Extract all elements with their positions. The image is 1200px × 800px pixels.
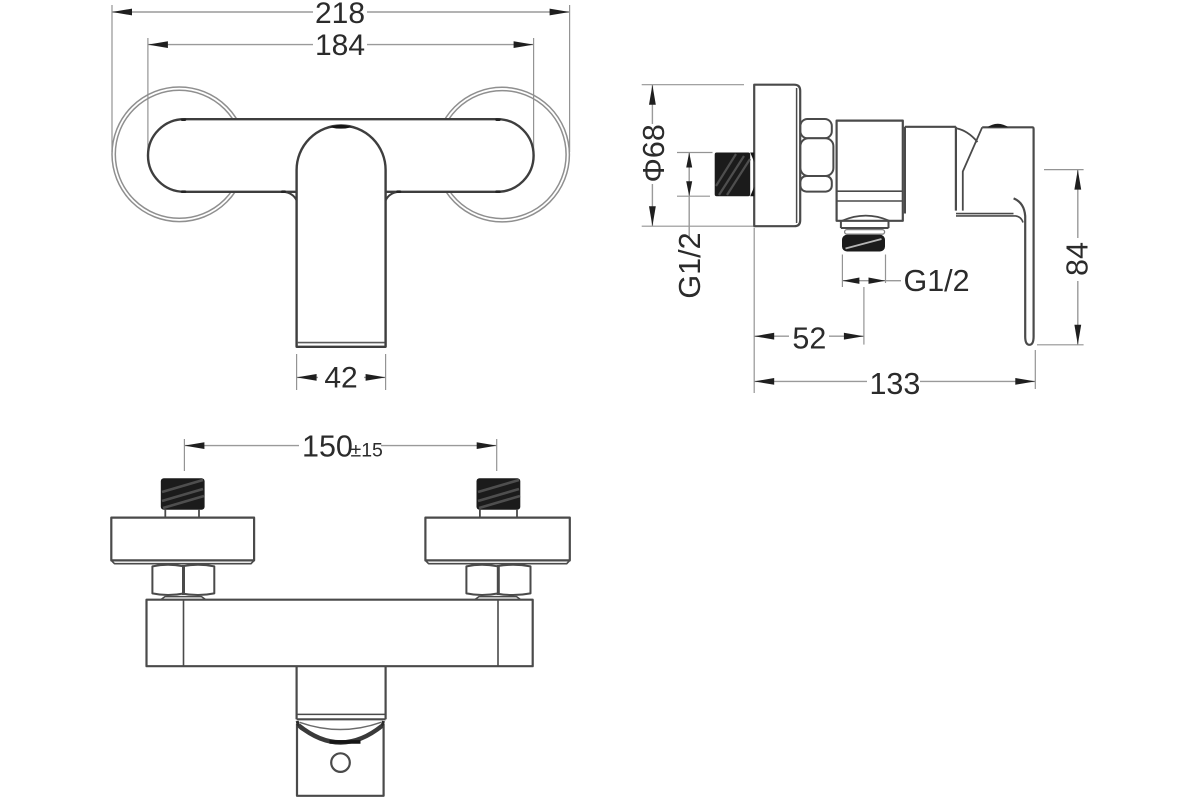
svg-text:G1/2: G1/2 [904, 264, 970, 298]
svg-text:184: 184 [315, 29, 365, 62]
svg-text:±15: ±15 [351, 440, 384, 462]
svg-text:150: 150 [302, 430, 353, 464]
svg-text:42: 42 [324, 362, 357, 395]
svg-text:Φ68: Φ68 [637, 124, 671, 182]
svg-text:218: 218 [315, 0, 365, 30]
svg-text:52: 52 [792, 322, 826, 356]
svg-text:84: 84 [1061, 242, 1095, 276]
svg-text:G1/2: G1/2 [673, 232, 707, 298]
svg-text:133: 133 [869, 367, 920, 401]
